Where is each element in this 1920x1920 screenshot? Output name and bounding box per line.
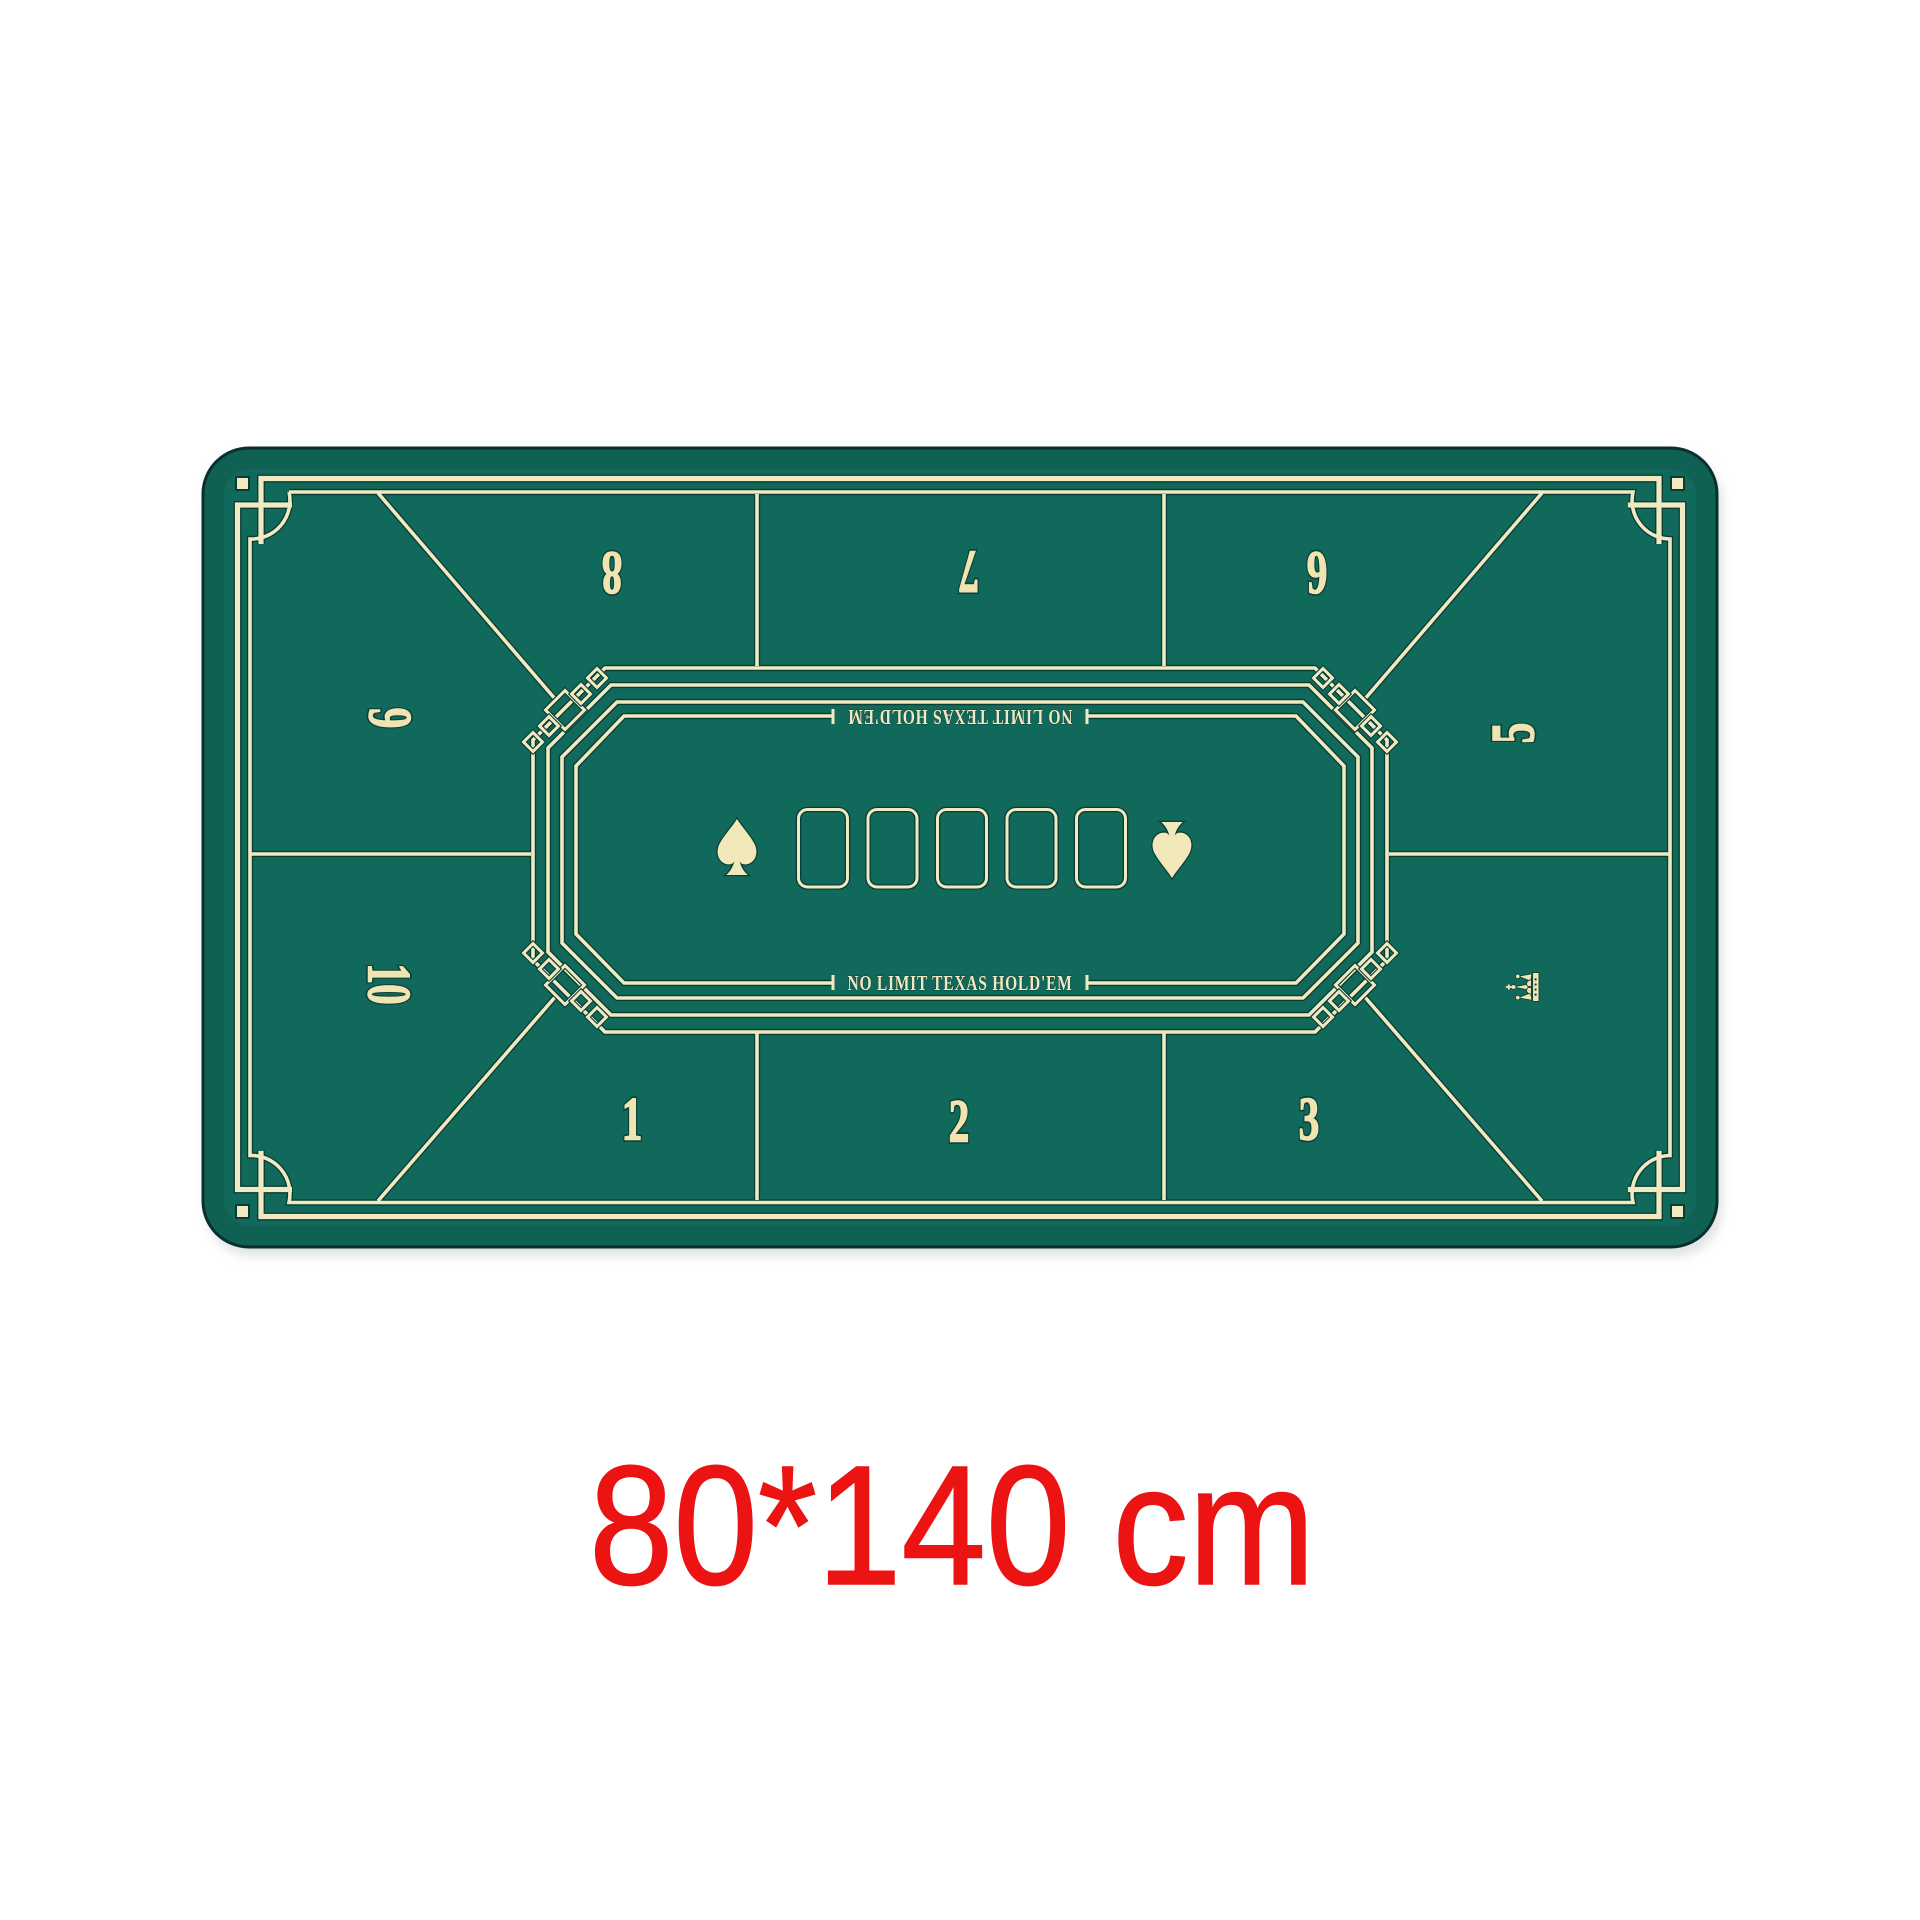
svg-text:6: 6	[1307, 538, 1328, 605]
svg-text:NO LIMIT TEXAS HOLD'EM: NO LIMIT TEXAS HOLD'EM	[848, 971, 1073, 995]
svg-text:NO LIMIT TEXAS HOLD'EM: NO LIMIT TEXAS HOLD'EM	[848, 705, 1073, 729]
svg-text:5: 5	[1481, 723, 1548, 744]
svg-text:2: 2	[949, 1089, 970, 1156]
svg-text:7: 7	[959, 537, 980, 604]
svg-text:80*140 cm: 80*140 cm	[589, 1431, 1315, 1621]
svg-text:8: 8	[602, 538, 623, 605]
svg-text:3: 3	[1299, 1087, 1320, 1154]
svg-text:9: 9	[355, 708, 422, 729]
svg-text:1: 1	[622, 1087, 643, 1154]
svg-text:10: 10	[354, 963, 421, 1004]
